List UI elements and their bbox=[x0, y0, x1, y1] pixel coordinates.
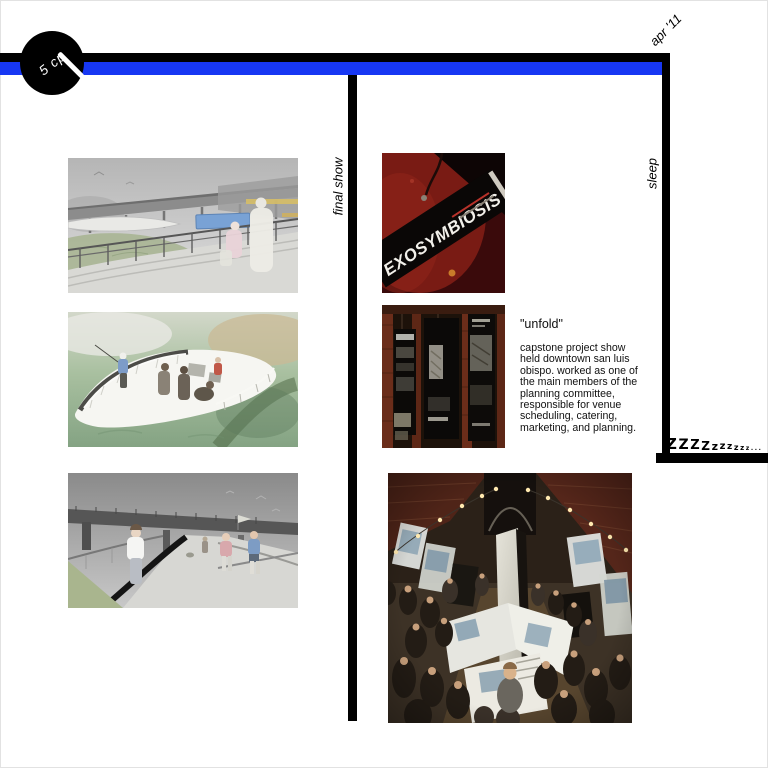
zzz-char: z bbox=[720, 442, 726, 452]
date-label: apr '11 bbox=[647, 11, 685, 49]
zzz-char: . bbox=[759, 446, 761, 452]
show-poster-photo: EXOSYMBIOSIS bbox=[382, 153, 505, 293]
zzz-char: z bbox=[740, 445, 744, 452]
zzz-char: z bbox=[712, 441, 718, 452]
section-label-sleep: sleep bbox=[645, 144, 660, 204]
zzz-text: ZZZZzzzzzz... bbox=[666, 430, 768, 452]
render-path-joggers-image bbox=[68, 473, 298, 608]
render-bridge-walkway-art bbox=[68, 158, 298, 293]
render-fishing-deck-art bbox=[68, 312, 298, 447]
zzz-char: Z bbox=[678, 438, 688, 452]
middle-divider-line bbox=[348, 75, 357, 721]
event-crowd-photo bbox=[388, 473, 632, 723]
right-divider-line bbox=[662, 53, 670, 462]
section-label-final-show: final show bbox=[331, 151, 346, 223]
event-crowd-art bbox=[388, 473, 632, 723]
unfold-title: "unfold" bbox=[520, 317, 648, 331]
render-path-joggers-art bbox=[68, 473, 298, 608]
render-fishing-deck-image bbox=[68, 312, 298, 447]
zzz-char: Z bbox=[666, 437, 677, 452]
top-timeline-black-line bbox=[0, 53, 670, 62]
gallery-wall-art bbox=[382, 305, 505, 448]
zzz-char: z bbox=[746, 446, 750, 452]
zzz-char: Z bbox=[701, 440, 710, 452]
unfold-text-block: "unfold" capstone project show held down… bbox=[520, 317, 648, 434]
gallery-wall-photo bbox=[382, 305, 505, 448]
show-poster-art: EXOSYMBIOSIS bbox=[382, 153, 505, 293]
chapter-badge: 5 cp bbox=[20, 31, 84, 95]
unfold-description: capstone project show held downtown san … bbox=[520, 343, 648, 434]
render-bridge-walkway-image bbox=[68, 158, 298, 293]
zzz-char: Z bbox=[690, 439, 699, 452]
zzz-char: . bbox=[751, 446, 753, 452]
portfolio-page: 5 cp apr '11 final show sleep ZZZZzzzzzz… bbox=[0, 0, 768, 768]
zzz-char: z bbox=[734, 444, 739, 452]
top-timeline-blue-line bbox=[0, 62, 662, 75]
zzz-char: z bbox=[727, 443, 732, 452]
zzz-char: . bbox=[755, 446, 757, 452]
chapter-badge-label: 5 cp bbox=[7, 18, 97, 108]
sleep-baseline-line bbox=[656, 453, 768, 463]
